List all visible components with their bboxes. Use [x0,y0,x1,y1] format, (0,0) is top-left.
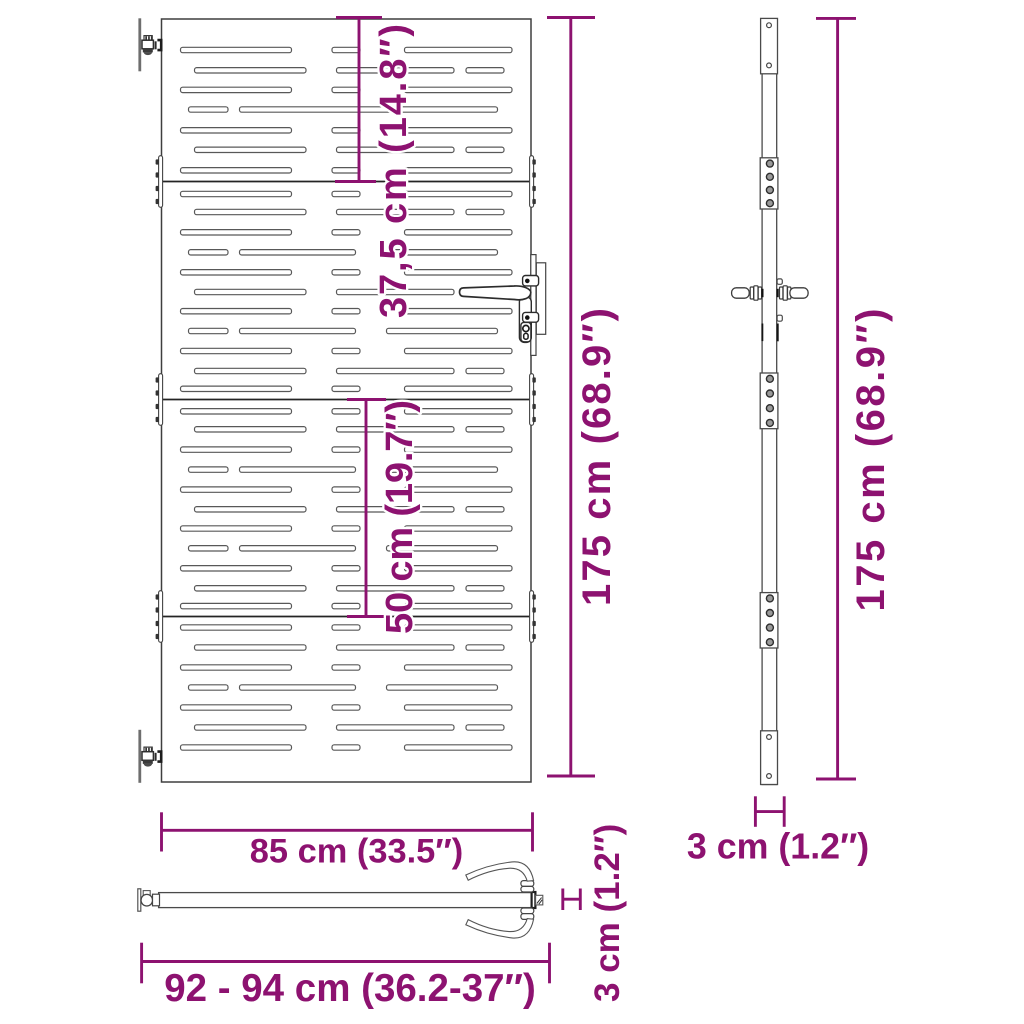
svg-text:175 cm (68.9″): 175 cm (68.9″) [849,309,893,612]
svg-text:175 cm (68.9″): 175 cm (68.9″) [575,308,619,606]
svg-text:3 cm (1.2″): 3 cm (1.2″) [588,824,627,1002]
svg-text:37,5 cm (14.8″): 37,5 cm (14.8″) [373,24,415,318]
svg-text:50 cm (19.7″): 50 cm (19.7″) [379,400,421,634]
svg-text:92 - 94 cm (36.2-37″): 92 - 94 cm (36.2-37″) [164,967,536,1010]
svg-text:85 cm (33.5″): 85 cm (33.5″) [250,833,463,871]
svg-text:3 cm (1.2″): 3 cm (1.2″) [687,827,869,867]
